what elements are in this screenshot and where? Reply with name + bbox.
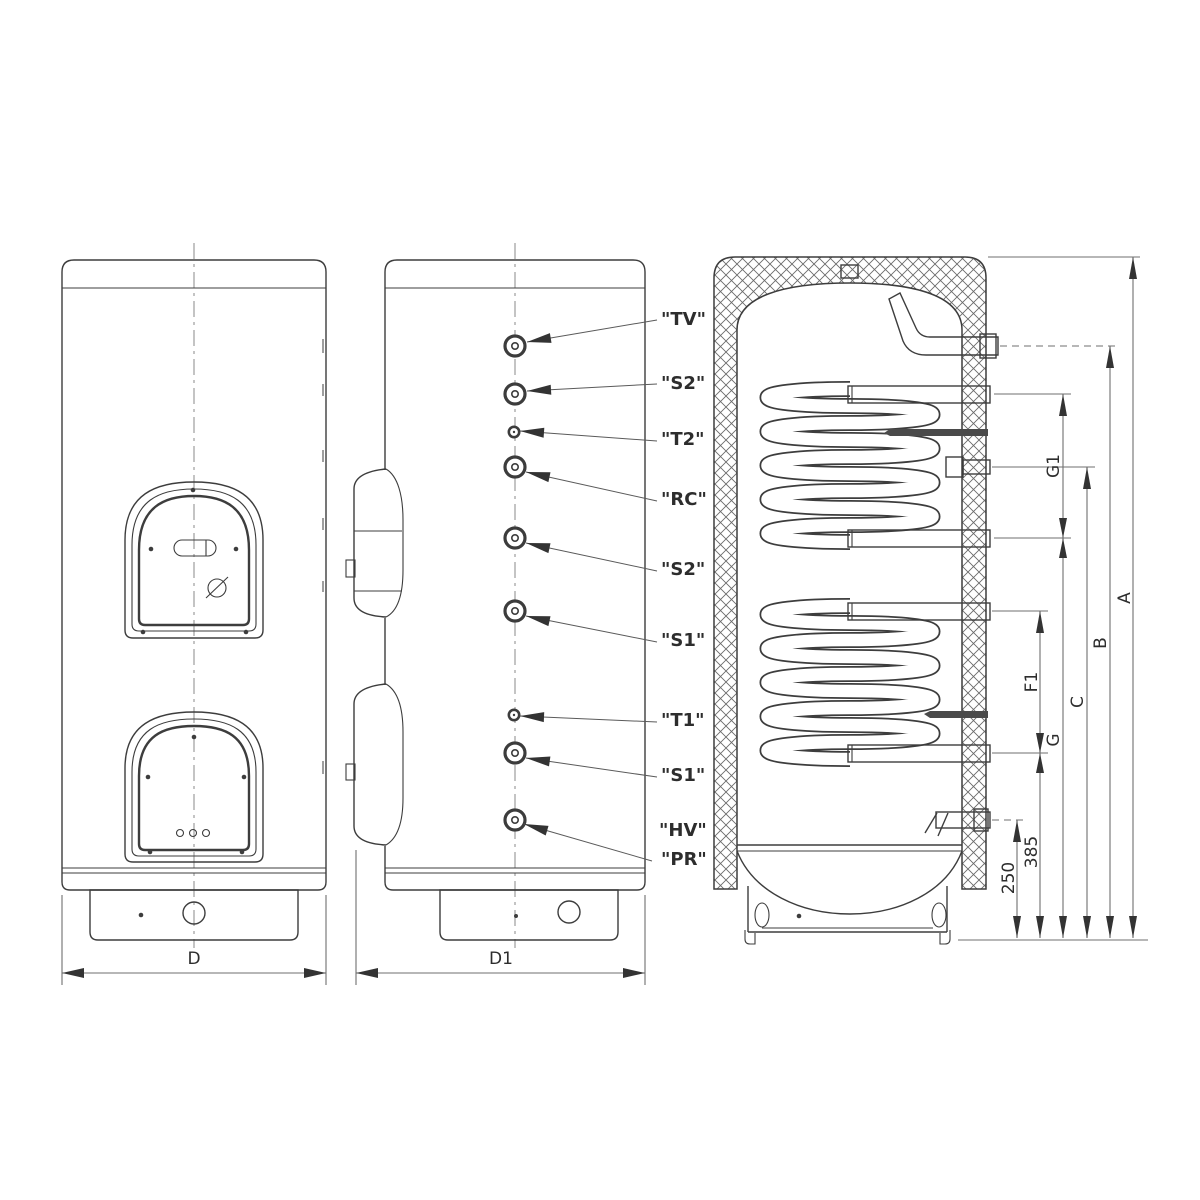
lower-coil [768,603,991,762]
lower-cover-profile [346,684,403,845]
upper-coil [768,386,991,547]
port-label-t1: "T1" [661,710,705,731]
dim-label-a: A [1115,592,1135,604]
port-s2-bottom [505,528,525,548]
front-view: D [62,243,326,985]
side-base-pedestal [440,890,618,940]
water-heater-diagram: D [0,0,1200,1200]
port-labels: "TV" "S2" "T2" "RC" "S2" "S1" "T1" "S1" … [659,309,707,870]
dimension-c: C [1068,467,1091,938]
dimension-250: 250 [999,820,1021,938]
port-label-rc: "RC" [661,489,707,510]
foot-slot [932,903,946,927]
upper-cover-profile [346,469,403,617]
port-s1-bottom [505,743,525,763]
dimension-b: B [1091,346,1114,938]
dim-label-d: D [187,949,200,969]
port-label-s1-top: "S1" [661,630,705,651]
dim-label-385: 385 [1022,836,1042,868]
port-t2 [509,427,519,437]
technical-drawing-page: D [0,0,1200,1200]
port-label-s2-bottom: "S2" [661,559,705,580]
dim-label-f1: F1 [1022,672,1042,693]
tank-bottom [737,845,962,914]
port-label-hv: "HV" [659,820,707,841]
handle-slot [174,540,216,556]
port-s2-top [505,384,525,404]
port-label-t2: "T2" [661,429,705,450]
dimension-g1-g: G1 G [1044,394,1067,938]
drain-hole [558,901,580,923]
port-s1-top [505,601,525,621]
port-label-pr: "PR" [661,849,707,870]
port-tv [505,336,525,356]
dim-label-b: B [1091,637,1111,649]
port-hv [505,810,525,830]
port-label-s2-top: "S2" [661,373,705,394]
cable-gland-holes [177,830,210,837]
port-label-s1-bottom: "S1" [661,765,705,786]
dim-label-g1: G1 [1044,454,1064,478]
t1-sensor-pocket [924,711,988,718]
dim-label-d1: D1 [489,949,513,969]
insulation-jacket [714,257,986,889]
dim-label-c: C [1068,696,1088,708]
port-t1 [509,710,519,720]
panel-screw-dots [146,735,247,855]
dimension-a: A [1115,257,1137,938]
side-view: "TV" "S2" "T2" "RC" "S2" "S1" "T1" "S1" … [346,243,707,985]
port-label-tv: "TV" [661,309,706,330]
t2-sensor-pocket [884,429,988,436]
foot-slot [755,903,769,927]
section-view [714,257,998,944]
dim-label-250: 250 [999,862,1019,894]
dim-label-g: G [1044,733,1064,746]
port-rc [505,457,525,477]
port-leaders [520,320,657,861]
dimension-d1: D1 [356,850,645,985]
dimension-f1-385: F1 385 [1022,611,1044,938]
